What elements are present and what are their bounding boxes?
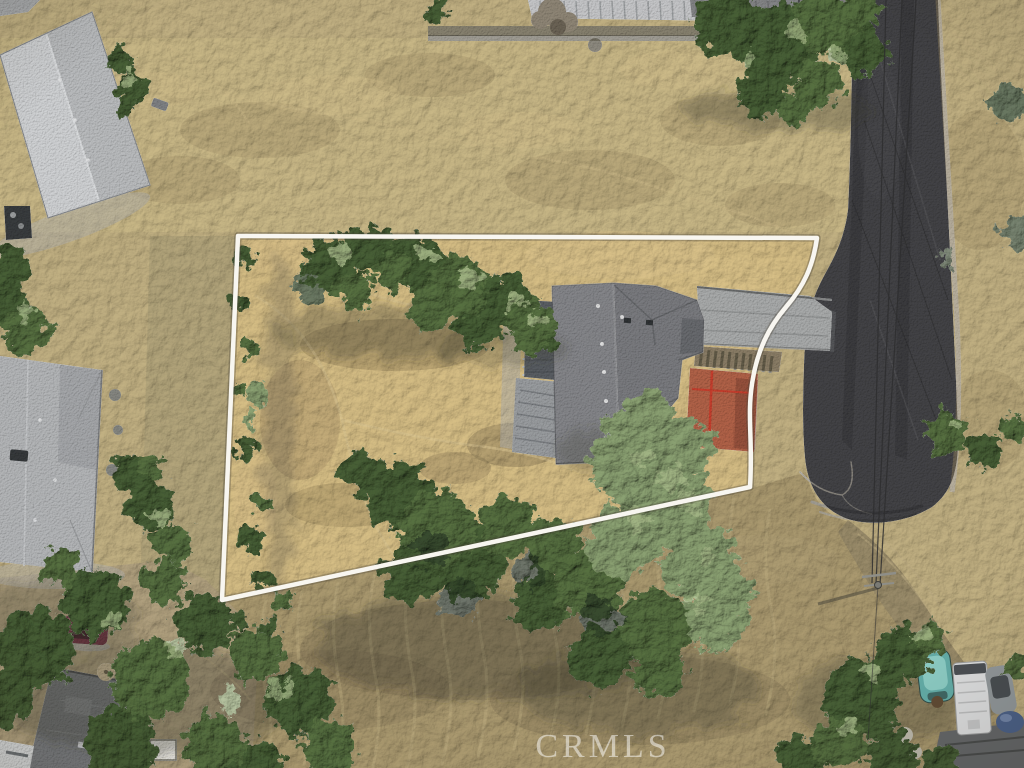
aerial-property-photo: CRMLS [0,0,1024,768]
watermark-text: CRMLS [535,728,670,765]
vignette [0,0,1024,768]
aerial-photo-canvas: CRMLS [0,0,1024,768]
